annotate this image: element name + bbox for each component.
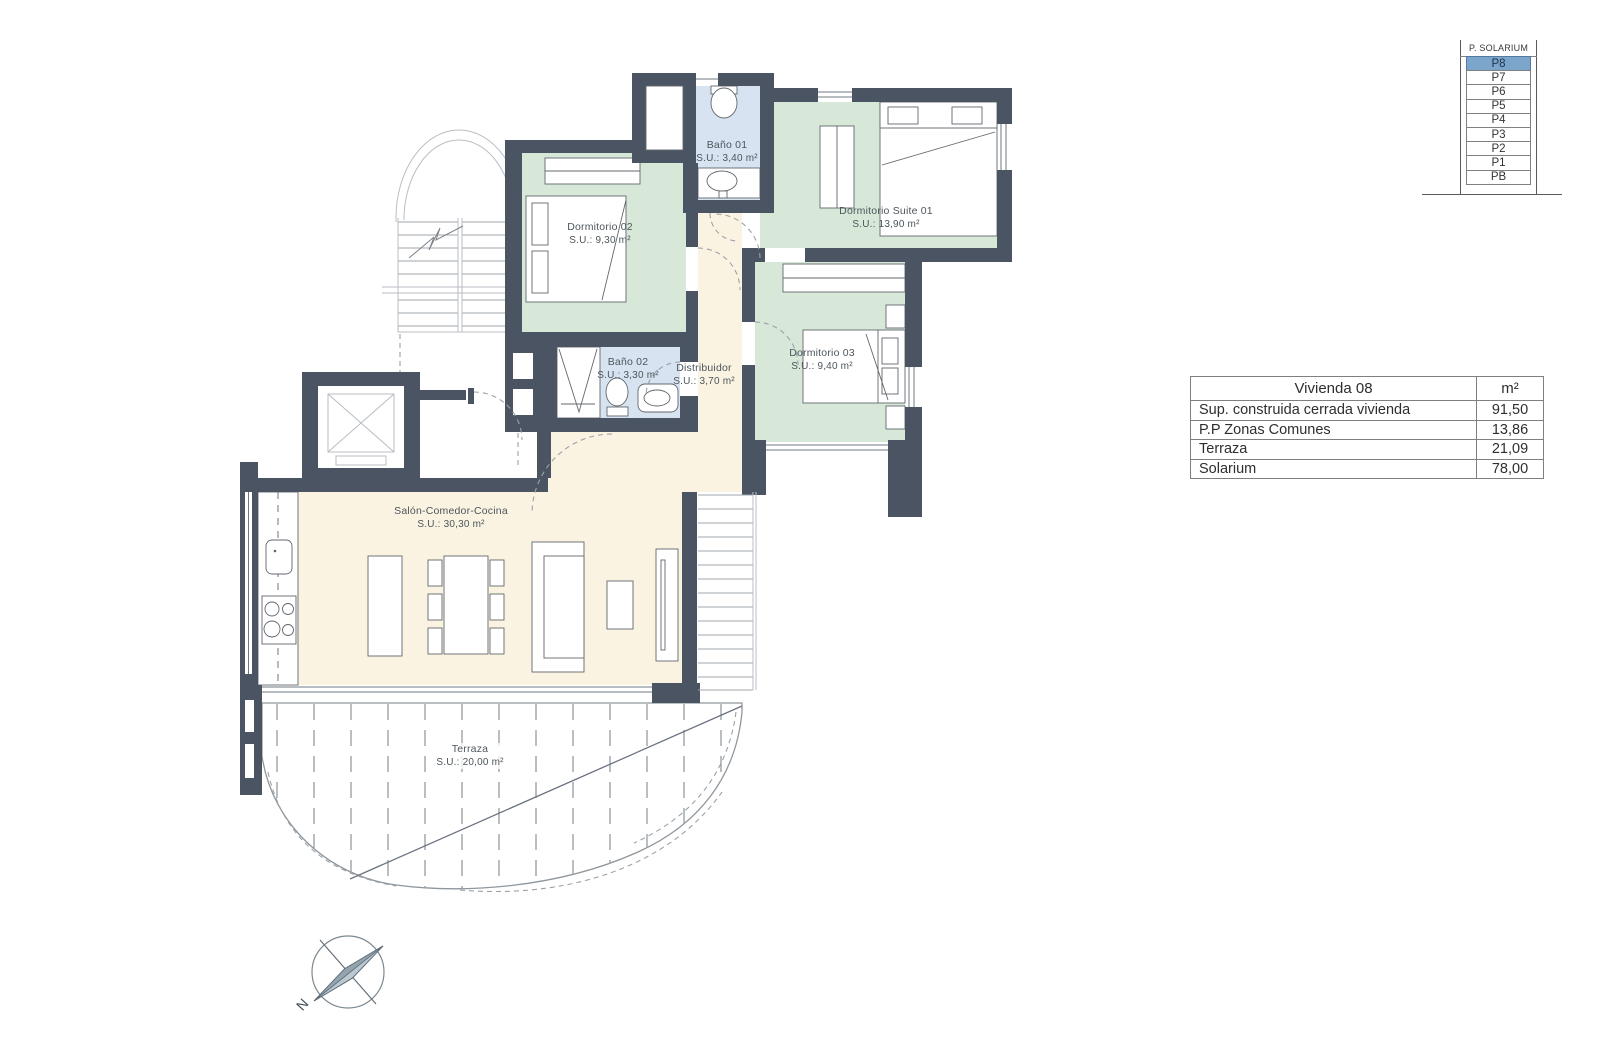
floor-selector: P. SOLARIUM P8 P7 P6 P5 P4 P3 P2 P1 PB — [1422, 40, 1562, 196]
room-name: Salón-Comedor-Cocina — [394, 505, 508, 518]
area-row-value: 21,09 — [1477, 441, 1543, 457]
floor-plan-drawing: N — [0, 0, 1600, 1039]
ground-line — [1422, 194, 1562, 195]
elevator — [302, 372, 420, 478]
area-table-header: Vivienda 08 m² — [1191, 377, 1543, 400]
floor-row-pb[interactable]: PB — [1466, 170, 1531, 185]
compass-north-label: N — [293, 995, 312, 1013]
nightstand-dorm03-bottom — [886, 406, 905, 429]
room-fill-corridor — [698, 213, 742, 347]
table-row: Terraza 21,09 — [1191, 439, 1543, 459]
tv-unit — [656, 549, 678, 661]
room-area: S.U.: 3,30 m² — [597, 369, 659, 382]
room-name: Dormitorio 02 — [567, 221, 633, 234]
room-label-suite-01: Dormitorio Suite 01 S.U.: 13,90 m² — [839, 205, 933, 231]
nightstand-dorm03-top — [886, 305, 905, 328]
room-area: S.U.: 3,70 m² — [673, 375, 735, 388]
room-area: S.U.: 9,40 m² — [789, 360, 855, 373]
area-summary-table: Vivienda 08 m² Sup. construida cerrada v… — [1190, 376, 1544, 479]
floor-row-p3[interactable]: P3 — [1466, 127, 1531, 142]
floor-row-p5[interactable]: P5 — [1466, 99, 1531, 114]
room-name: Terraza — [436, 743, 503, 756]
floor-row-p1[interactable]: P1 — [1466, 155, 1531, 170]
entry-closet — [646, 86, 683, 150]
area-row-label: Solarium — [1191, 460, 1477, 479]
room-area: S.U.: 9,30 m² — [567, 234, 633, 247]
floor-row-p4[interactable]: P4 — [1466, 113, 1531, 128]
dining-table — [444, 556, 488, 654]
room-area: S.U.: 20,00 m² — [436, 756, 503, 769]
table-row: P.P Zonas Comunes 13,86 — [1191, 420, 1543, 440]
room-label-salon: Salón-Comedor-Cocina S.U.: 30,30 m² — [394, 505, 508, 531]
room-label-bano-01: Baño 01 S.U.: 3,40 m² — [696, 139, 758, 165]
coffee-table — [607, 581, 633, 629]
room-name: Dormitorio Suite 01 — [839, 205, 933, 218]
tv-screen — [661, 560, 665, 650]
kitchen-sink — [266, 540, 292, 574]
area-row-value: 13,86 — [1477, 422, 1543, 438]
room-area: S.U.: 30,30 m² — [394, 518, 508, 531]
floor-row-p2[interactable]: P2 — [1466, 141, 1531, 156]
table-row: Sup. construida cerrada vivienda 91,50 — [1191, 400, 1543, 420]
room-name: Dormitorio 03 — [789, 347, 855, 360]
area-table-title: Vivienda 08 — [1191, 377, 1477, 400]
area-row-value: 91,50 — [1477, 402, 1543, 418]
room-label-bano-02: Baño 02 S.U.: 3,30 m² — [597, 356, 659, 382]
room-name: Distribuidor — [673, 362, 735, 375]
room-label-dormitorio-03: Dormitorio 03 S.U.: 9,40 m² — [789, 347, 855, 373]
floor-row-p8[interactable]: P8 — [1466, 56, 1531, 71]
terrace-area — [262, 703, 742, 892]
kitchen-hob — [262, 596, 296, 644]
area-table-unit: m² — [1477, 380, 1543, 397]
floor-selector-header: P. SOLARIUM — [1460, 40, 1537, 57]
area-row-label: Terraza — [1191, 440, 1477, 459]
area-row-label: Sup. construida cerrada vivienda — [1191, 401, 1477, 420]
room-label-terraza: Terraza S.U.: 20,00 m² — [433, 743, 506, 769]
room-name: Baño 02 — [597, 356, 659, 369]
room-name: Baño 01 — [696, 139, 758, 152]
room-fill-passage — [548, 432, 698, 492]
solarium-stairs — [698, 492, 756, 690]
kitchen-island — [368, 556, 402, 656]
room-area: S.U.: 3,40 m² — [696, 152, 758, 165]
floorplan-page: N Baño 01 S.U.: 3,40 m² Dormitorio 02 S.… — [0, 0, 1600, 1039]
toilet-bano02 — [607, 407, 628, 416]
table-row: Solarium 78,00 — [1191, 459, 1543, 479]
floor-row-p7[interactable]: P7 — [1466, 70, 1531, 85]
floor-row-p6[interactable]: P6 — [1466, 84, 1531, 99]
room-area: S.U.: 13,90 m² — [839, 218, 933, 231]
compass-icon: N — [293, 936, 384, 1013]
area-row-label: P.P Zonas Comunes — [1191, 421, 1477, 440]
shower-bano02 — [557, 347, 600, 418]
room-label-dormitorio-02: Dormitorio 02 S.U.: 9,30 m² — [567, 221, 633, 247]
room-label-distribuidor: Distribuidor S.U.: 3,70 m² — [673, 362, 735, 388]
area-row-value: 78,00 — [1477, 461, 1543, 477]
